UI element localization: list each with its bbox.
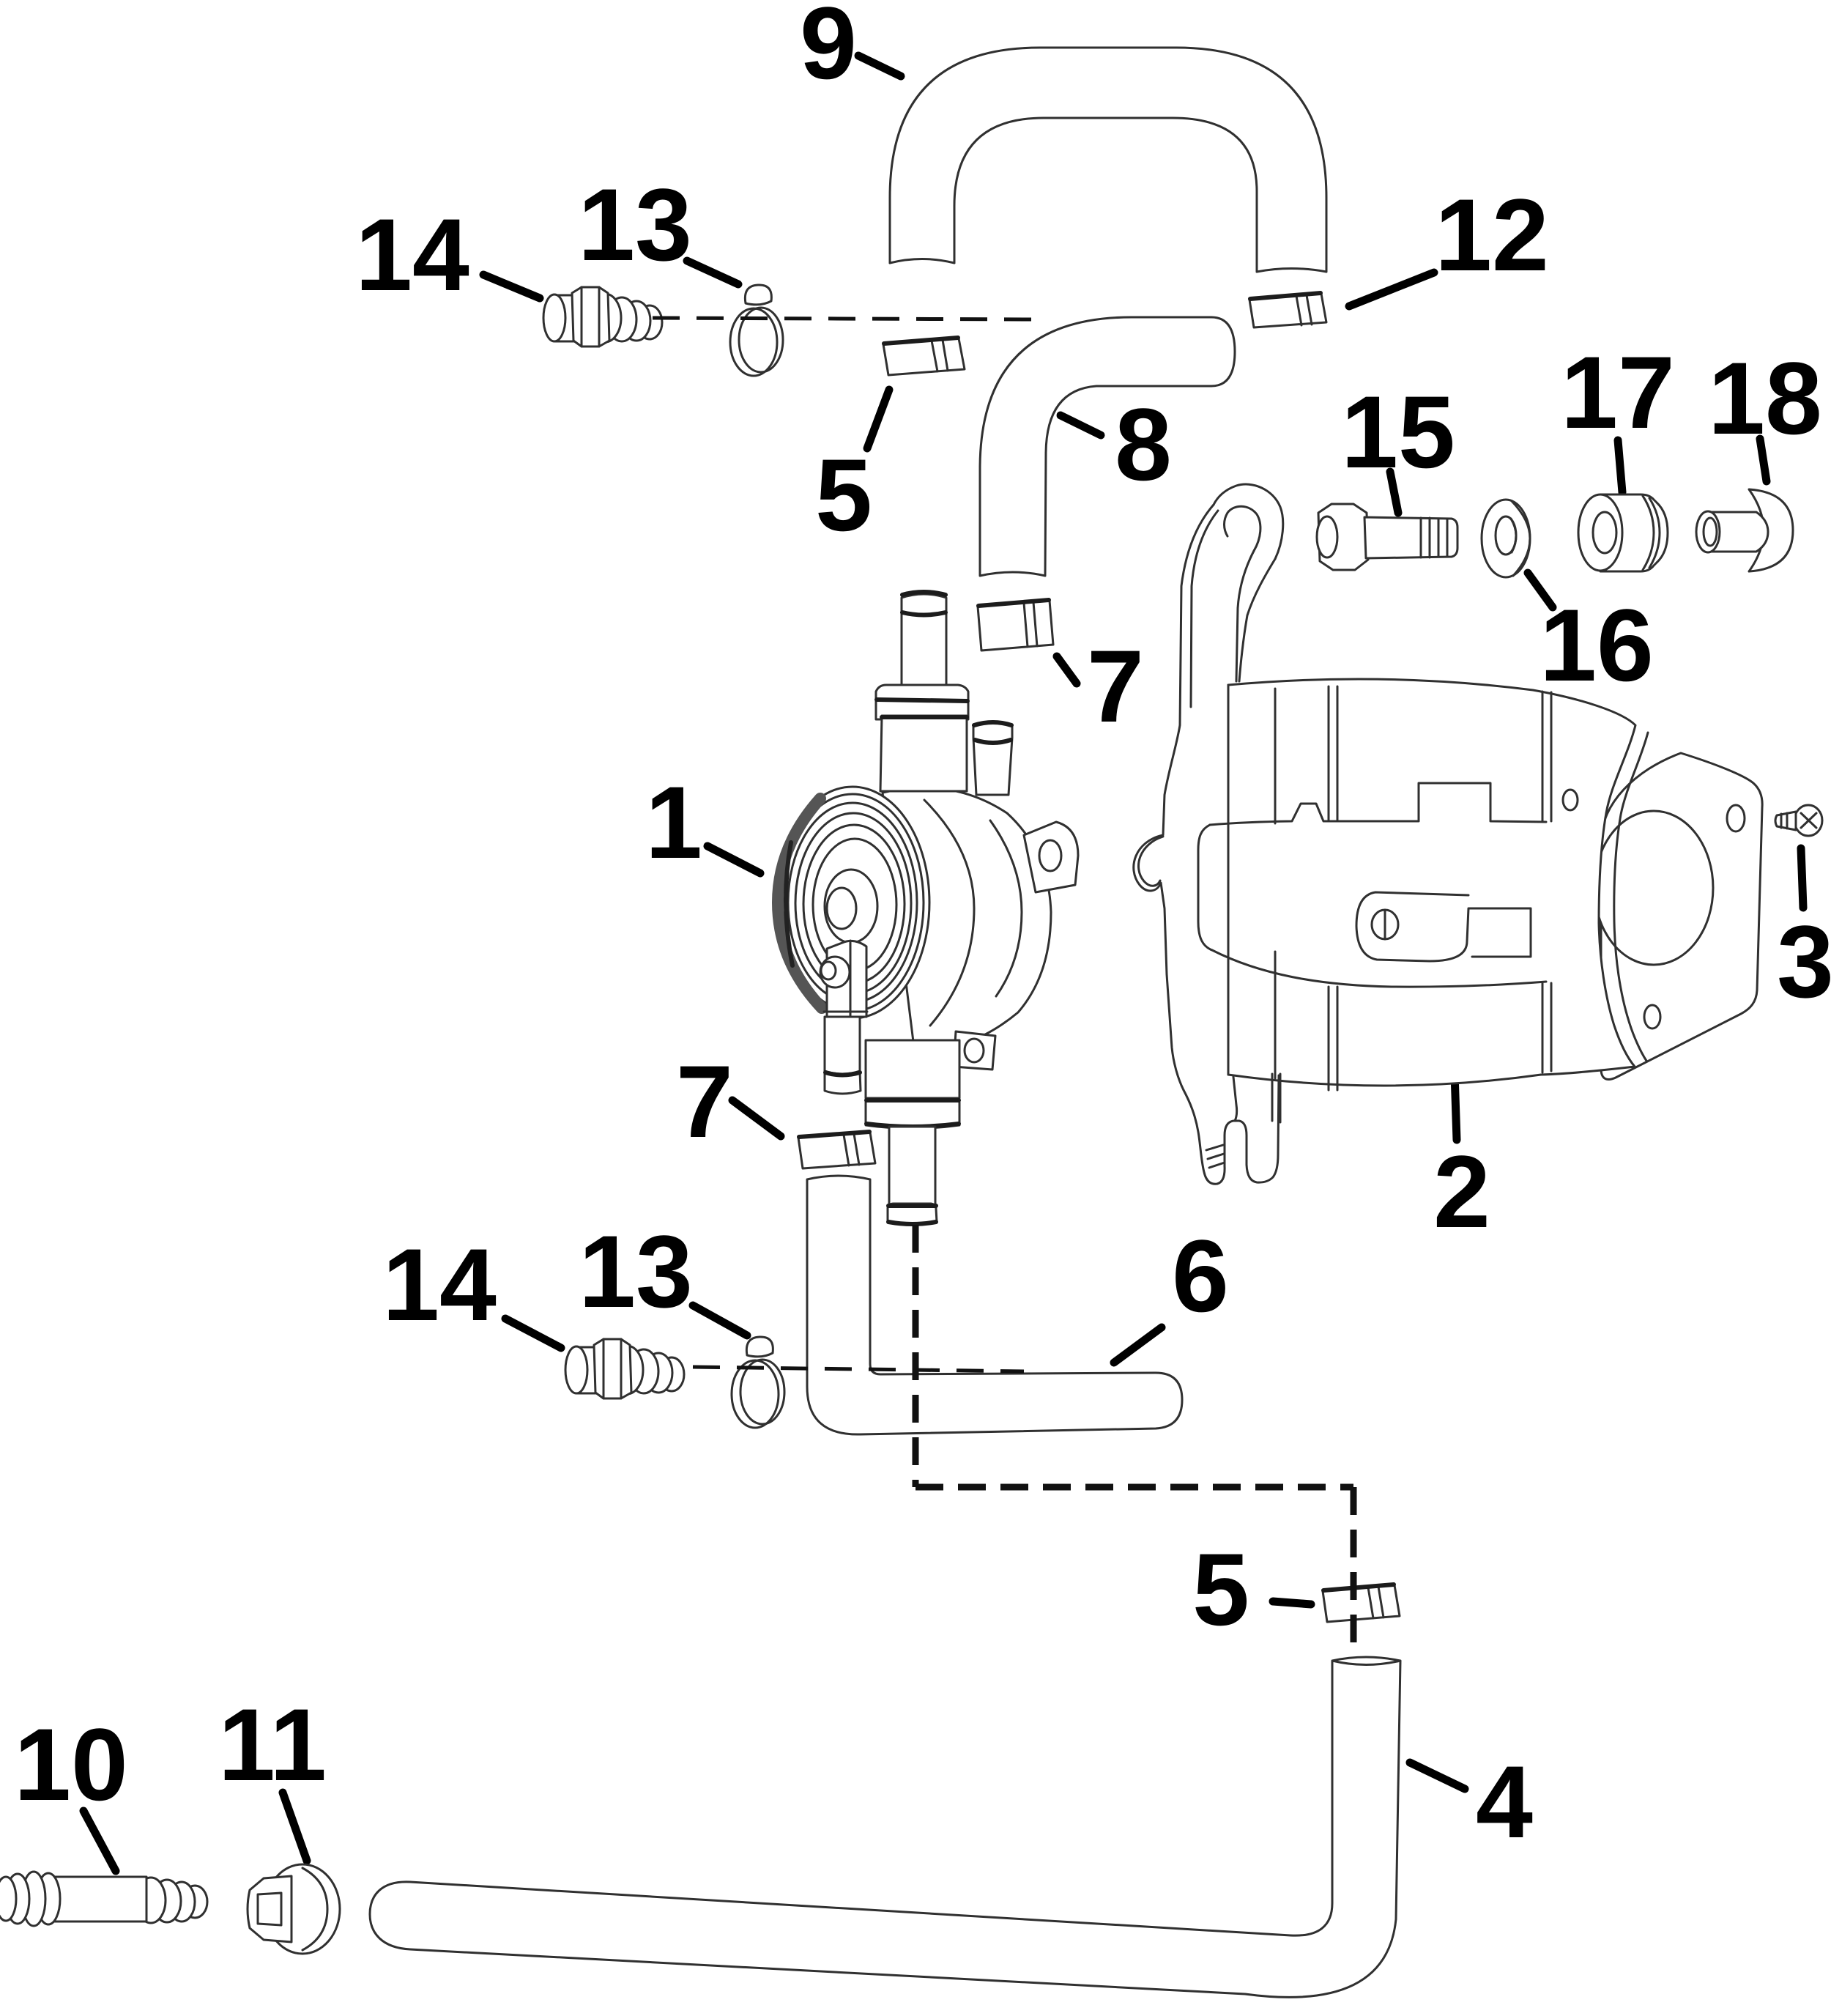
- svg-text:3: 3: [1777, 904, 1831, 1019]
- svg-text:13: 13: [578, 167, 692, 282]
- svg-text:4: 4: [1476, 1744, 1533, 1859]
- svg-text:8: 8: [1115, 387, 1172, 502]
- svg-text:7: 7: [1087, 629, 1144, 744]
- svg-text:1: 1: [645, 765, 702, 880]
- svg-text:16: 16: [1540, 588, 1654, 703]
- svg-text:5: 5: [1192, 1532, 1249, 1647]
- svg-text:12: 12: [1435, 177, 1549, 292]
- svg-text:2: 2: [1433, 1134, 1490, 1249]
- svg-text:5: 5: [815, 437, 872, 552]
- svg-text:14: 14: [355, 197, 469, 312]
- svg-text:6: 6: [1172, 1218, 1229, 1333]
- svg-text:14: 14: [382, 1227, 497, 1342]
- svg-text:15: 15: [1341, 374, 1455, 489]
- svg-text:11: 11: [218, 1687, 327, 1802]
- svg-text:10: 10: [14, 1707, 128, 1822]
- svg-text:7: 7: [676, 1044, 733, 1159]
- svg-text:9: 9: [800, 0, 857, 100]
- svg-text:13: 13: [579, 1214, 693, 1329]
- svg-text:18: 18: [1708, 341, 1822, 456]
- svg-text:17: 17: [1561, 335, 1675, 450]
